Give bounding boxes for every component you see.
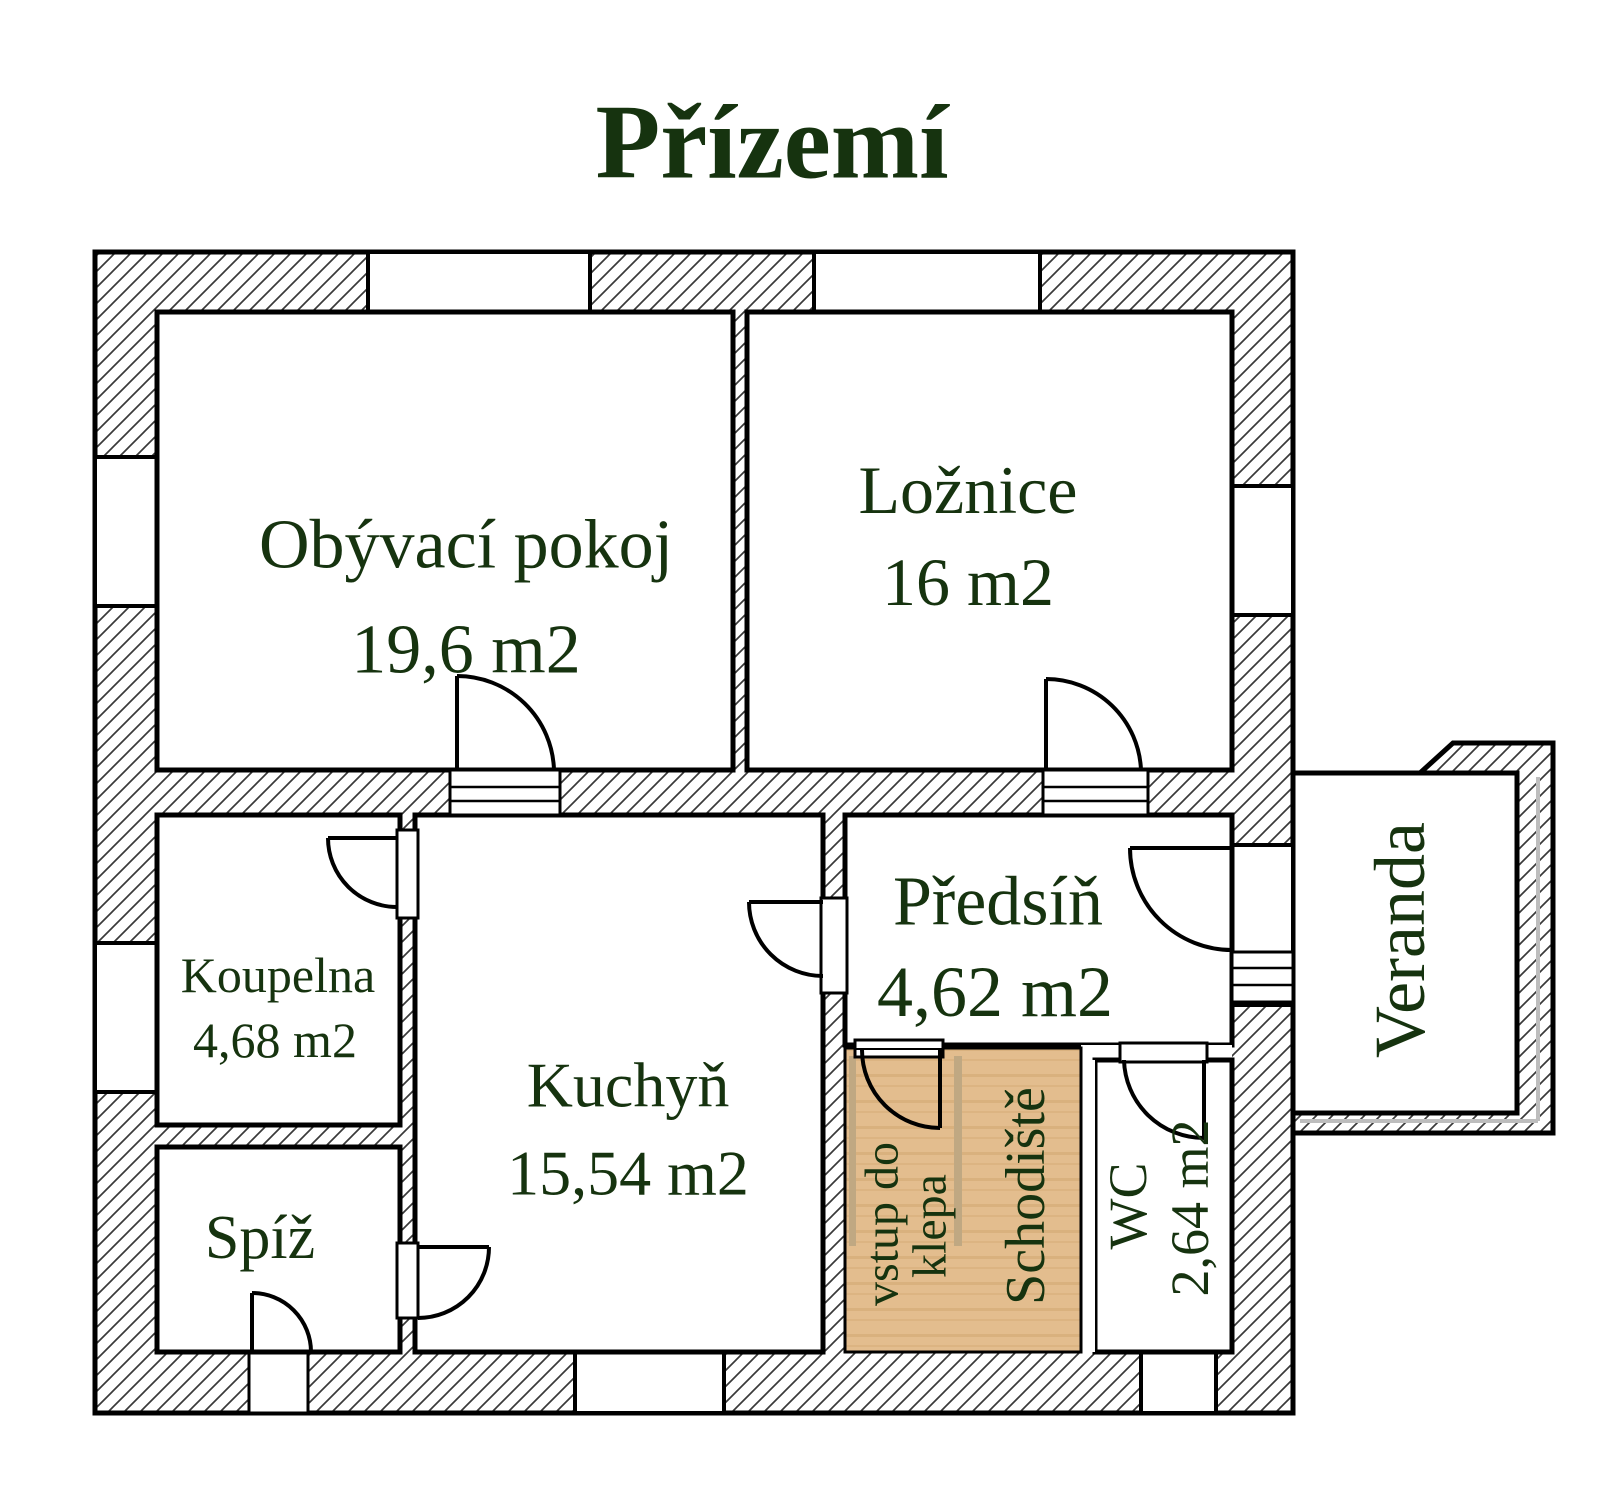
page-title: Přízemí bbox=[595, 84, 950, 201]
window-bottom-wc bbox=[1141, 1352, 1216, 1413]
floor-plan-page: Přízemí Obývací pokoj 19,6 m2 Ložnice 16… bbox=[0, 0, 1600, 1508]
room-label-staircase: Schodiště bbox=[995, 1087, 1057, 1305]
room-label-veranda: Veranda bbox=[1360, 822, 1440, 1058]
floor-plan-drawing: Přízemí Obývací pokoj 19,6 m2 Ložnice 16… bbox=[0, 0, 1600, 1508]
window-right-bedroom bbox=[1232, 486, 1293, 615]
room-area-hallway: 4,62 m2 bbox=[877, 952, 1113, 1032]
room-label-bedroom: Ložnice bbox=[859, 452, 1078, 528]
room-label-living: Obývací pokoj bbox=[259, 507, 673, 584]
room-label-kitchen: Kuchyň bbox=[527, 1050, 730, 1121]
room-label-bathroom: Koupelna bbox=[181, 947, 375, 1003]
room-label-hallway: Předsíň bbox=[893, 864, 1103, 941]
room-area-bedroom: 16 m2 bbox=[882, 544, 1054, 620]
window-left-bathroom bbox=[95, 943, 157, 1092]
room-area-living: 19,6 m2 bbox=[351, 612, 580, 689]
window-top-bedroom bbox=[814, 252, 1040, 312]
window-left-living bbox=[95, 457, 157, 606]
room-area-bathroom: 4,68 m2 bbox=[193, 1012, 357, 1068]
window-bottom-kitchen bbox=[575, 1352, 724, 1413]
window-top-living bbox=[368, 252, 590, 312]
room-area-kitchen: 15,54 m2 bbox=[507, 1138, 749, 1209]
room-area-wc: 2,64 m2 bbox=[1160, 1119, 1220, 1296]
cellar-entrance-label-line1: vstup do bbox=[856, 1142, 909, 1306]
room-label-wc: WC bbox=[1098, 1163, 1158, 1250]
cellar-entrance-label-line2: klepa bbox=[904, 1174, 957, 1278]
door-gap-pantry-exterior bbox=[249, 1352, 308, 1413]
wall-core-stair-wc bbox=[1081, 1060, 1095, 1352]
room-label-pantry: Spíž bbox=[205, 1204, 315, 1272]
room-bedroom bbox=[747, 312, 1232, 770]
